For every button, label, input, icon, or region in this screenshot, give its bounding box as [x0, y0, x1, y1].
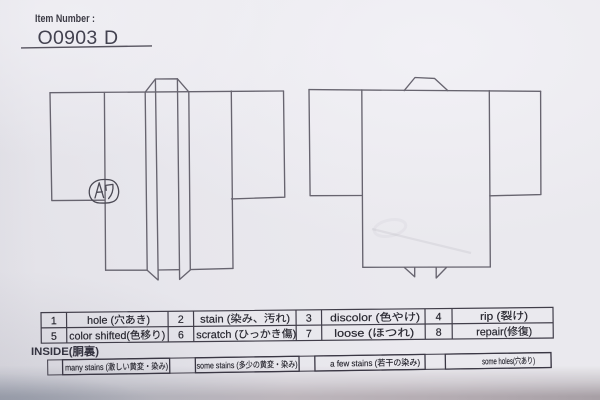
- svg-text:6: 6: [178, 329, 184, 341]
- svg-text:color shifted(色移り): color shifted(色移り): [69, 329, 165, 343]
- svg-text:7: 7: [306, 328, 312, 340]
- svg-text:5: 5: [51, 331, 57, 343]
- svg-text:Item Number :: Item Number :: [35, 13, 95, 25]
- svg-text:1: 1: [51, 315, 57, 327]
- svg-text:8: 8: [436, 327, 442, 339]
- svg-text:some holes(穴あり): some holes(穴あり): [482, 355, 535, 367]
- svg-text:a few stains (若干の染み): a few stains (若干の染み): [330, 356, 420, 368]
- svg-text:INSIDE(胴裏): INSIDE(胴裏): [31, 344, 99, 358]
- svg-text:repair(修復): repair(修復): [476, 325, 532, 339]
- svg-text:2: 2: [178, 314, 184, 326]
- svg-text:hole (穴あき): hole (穴あき): [87, 313, 150, 327]
- svg-text:loose (ほつれ): loose (ほつれ): [334, 327, 414, 340]
- svg-text:4: 4: [436, 311, 442, 323]
- svg-text:3: 3: [306, 313, 312, 325]
- svg-text:D: D: [104, 27, 118, 49]
- svg-text:stain (染み、汚れ): stain (染み、汚れ): [200, 312, 290, 326]
- svg-text:many stains (激しい黄変・染み): many stains (激しい黄変・染み): [65, 360, 168, 373]
- svg-text:scratch (ひっかき傷): scratch (ひっかき傷): [196, 327, 296, 341]
- svg-text:discolor (色やけ): discolor (色やけ): [330, 310, 420, 324]
- svg-text:some stains (多少の黄変・染み): some stains (多少の黄変・染み): [197, 358, 298, 370]
- svg-text:O0903: O0903: [38, 27, 98, 49]
- svg-text:rip (裂け): rip (裂け): [480, 309, 528, 322]
